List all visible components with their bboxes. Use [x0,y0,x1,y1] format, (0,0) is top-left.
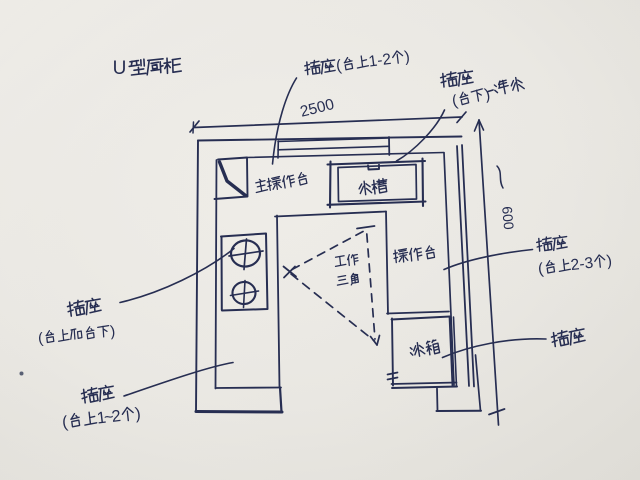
svg-text:U: U [113,58,127,79]
svg-text:600: 600 [499,206,517,231]
